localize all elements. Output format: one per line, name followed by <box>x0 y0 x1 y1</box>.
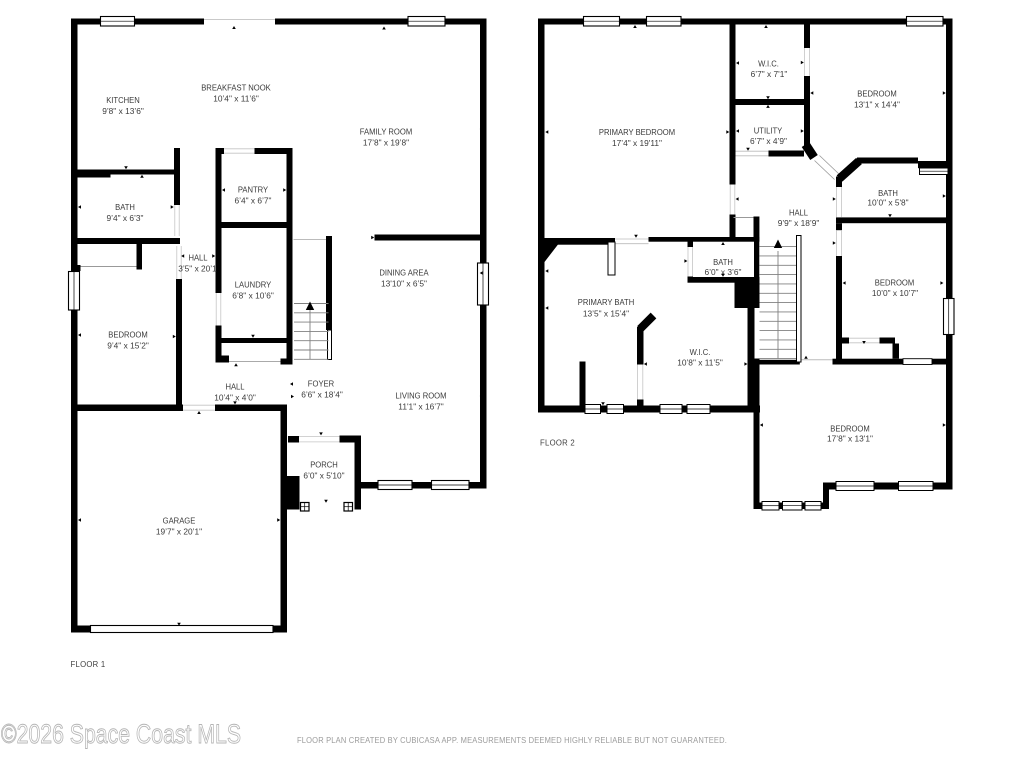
svg-text:BEDROOM: BEDROOM <box>875 278 915 288</box>
svg-text:PRIMARY BEDROOM: PRIMARY BEDROOM <box>599 127 675 137</box>
svg-text:11'1" x 16’7": 11'1" x 16’7" <box>398 402 443 412</box>
svg-text:6’4" x 6’7": 6’4" x 6’7" <box>235 196 272 206</box>
svg-text:PANTRY: PANTRY <box>238 185 269 195</box>
svg-text:6’6" x 18’4": 6’6" x 18’4" <box>301 390 343 400</box>
svg-text:W.I.C.: W.I.C. <box>690 347 711 357</box>
svg-text:FLOOR 1: FLOOR 1 <box>71 659 106 669</box>
svg-text:BEDROOM: BEDROOM <box>108 330 148 340</box>
svg-text:HALL: HALL <box>188 253 207 263</box>
svg-text:10’4" x 4’0": 10’4" x 4’0" <box>214 393 256 403</box>
svg-text:13’5" x 15’4": 13’5" x 15’4" <box>583 309 629 319</box>
svg-text:FAMILY ROOM: FAMILY ROOM <box>360 127 412 137</box>
svg-text:9’4" x 6’3": 9’4" x 6’3" <box>107 213 144 223</box>
svg-text:17’8" x 19’8": 17’8" x 19’8" <box>363 138 409 148</box>
svg-text:DINING AREA: DINING AREA <box>379 268 429 278</box>
svg-text:10’0" x 10’7": 10’0" x 10’7" <box>872 288 918 298</box>
svg-text:BATH: BATH <box>713 257 733 267</box>
svg-text:10’4" x 11’6": 10’4" x 11’6" <box>213 94 259 104</box>
svg-text:17’8" x 13'1": 17’8" x 13'1" <box>827 434 873 444</box>
svg-text:6’0" x 3’6": 6’0" x 3’6" <box>705 267 742 277</box>
svg-text:6’7" x 4’9": 6’7" x 4’9" <box>750 136 787 146</box>
svg-text:10’0" x 5'8": 10’0" x 5'8" <box>867 198 908 208</box>
svg-text:9’9" x 18’9": 9’9" x 18’9" <box>778 218 820 228</box>
svg-text:13'10" x 6’5": 13'10" x 6’5" <box>381 279 427 289</box>
svg-text:BATH: BATH <box>115 202 135 212</box>
svg-text:17’4" x 19'11": 17’4" x 19'11" <box>612 138 662 148</box>
svg-text:3’5" x 20’1: 3’5" x 20’1 <box>178 264 217 274</box>
svg-text:UTILITY: UTILITY <box>754 126 783 136</box>
svg-text:FOYER: FOYER <box>308 379 334 389</box>
svg-text:KITCHEN: KITCHEN <box>106 95 140 105</box>
svg-text:PORCH: PORCH <box>310 460 338 470</box>
svg-text:9’4" x 15’2": 9’4" x 15’2" <box>107 341 149 351</box>
svg-text:BEDROOM: BEDROOM <box>857 89 897 99</box>
svg-text:FLOOR 2: FLOOR 2 <box>540 438 575 448</box>
svg-text:HALL: HALL <box>789 208 808 218</box>
svg-text:19’7" x 20’1": 19’7" x 20’1" <box>156 527 202 537</box>
svg-text:BEDROOM: BEDROOM <box>830 424 870 434</box>
svg-text:9’8" x 13’6": 9’8" x 13’6" <box>102 106 144 116</box>
svg-text:HALL: HALL <box>225 382 244 392</box>
svg-text:6’8" x 10’6": 6’8" x 10’6" <box>232 291 274 301</box>
svg-text:FLOOR PLAN CREATED BY CUBICASA: FLOOR PLAN CREATED BY CUBICASA APP. MEAS… <box>297 735 727 745</box>
svg-text:6’0" x 5'10": 6’0" x 5'10" <box>303 471 344 481</box>
svg-text:13'1" x 14’4": 13'1" x 14’4" <box>854 100 900 110</box>
svg-text:10’8" x 11’5": 10’8" x 11’5" <box>677 358 723 368</box>
svg-text:BREAKFAST NOOK: BREAKFAST NOOK <box>201 83 271 93</box>
svg-text:©2026 Space Coast MLS: ©2026 Space Coast MLS <box>1 719 241 749</box>
svg-text:BATH: BATH <box>878 188 898 198</box>
svg-text:LIVING ROOM: LIVING ROOM <box>396 391 447 401</box>
svg-text:6’7" x 7'1": 6’7" x 7'1" <box>751 69 788 79</box>
svg-text:LAUNDRY: LAUNDRY <box>235 280 272 290</box>
svg-text:W.I.C.: W.I.C. <box>758 59 779 69</box>
svg-text:PRIMARY BATH: PRIMARY BATH <box>578 297 635 307</box>
svg-text:GARAGE: GARAGE <box>163 516 196 526</box>
